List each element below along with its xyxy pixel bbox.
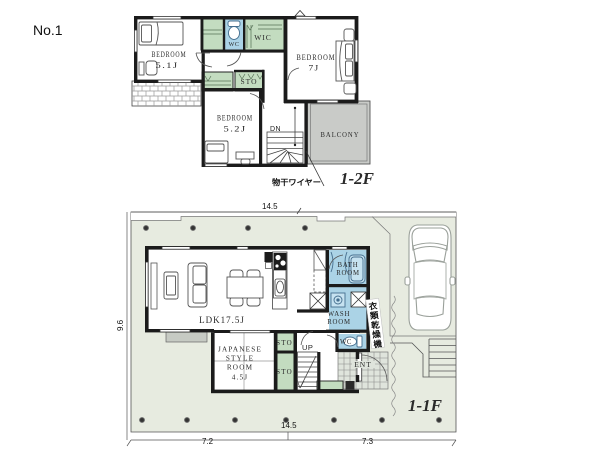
svg-text:STO: STO	[276, 368, 293, 376]
svg-text:STYLE: STYLE	[226, 355, 254, 363]
svg-text:WASH: WASH	[328, 311, 350, 318]
svg-text:5.2J: 5.2J	[224, 124, 247, 134]
svg-text:5.1J: 5.1J	[156, 60, 179, 70]
svg-text:BALCONY: BALCONY	[321, 130, 360, 139]
svg-text:1-1F: 1-1F	[408, 396, 443, 415]
svg-text:UP: UP	[302, 343, 313, 352]
svg-text:4.5J: 4.5J	[232, 374, 249, 382]
svg-text:ROOM: ROOM	[227, 364, 253, 372]
svg-text:ROOM: ROOM	[327, 319, 351, 326]
svg-text:STO: STO	[240, 77, 257, 86]
svg-text:WIC: WIC	[254, 33, 272, 42]
svg-text:14.5: 14.5	[281, 421, 297, 430]
svg-text:DN: DN	[270, 126, 281, 133]
svg-text:物干ワイヤー: 物干ワイヤー	[272, 177, 321, 187]
svg-text:LDK17.5J: LDK17.5J	[199, 315, 245, 325]
svg-text:BEDROOM: BEDROOM	[297, 52, 336, 62]
svg-text:1-2F: 1-2F	[340, 169, 375, 188]
svg-text:BEDROOM: BEDROOM	[217, 113, 253, 123]
svg-text:7.3: 7.3	[362, 437, 374, 446]
svg-text:WC: WC	[229, 41, 240, 48]
svg-text:9.6: 9.6	[116, 319, 125, 331]
svg-text:BEDROOM: BEDROOM	[152, 49, 187, 59]
svg-text:ENT: ENT	[354, 360, 372, 369]
svg-text:14.5: 14.5	[262, 202, 278, 211]
svg-text:No.1: No.1	[33, 22, 63, 38]
svg-text:STO: STO	[276, 339, 293, 347]
svg-text:機: 機	[373, 338, 383, 349]
svg-text:JAPANESE: JAPANESE	[218, 346, 262, 354]
svg-text:WC: WC	[340, 339, 352, 346]
svg-text:BATH: BATH	[338, 262, 359, 269]
svg-text:7J: 7J	[309, 63, 320, 73]
svg-text:7.2: 7.2	[202, 437, 214, 446]
svg-text:ROOM: ROOM	[336, 270, 360, 277]
